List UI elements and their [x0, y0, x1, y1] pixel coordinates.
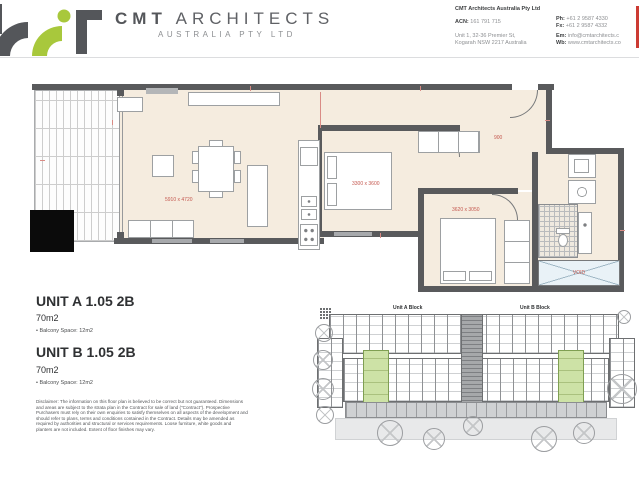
acn-value: 161 791 715 — [470, 19, 501, 25]
window-living-1 — [152, 239, 192, 243]
dim-bed1: 3300 x 3600 — [352, 182, 380, 187]
dim-living: 5910 x 4720 — [165, 198, 193, 203]
disclaimer-text: Disclaimer: The information on this floo… — [36, 399, 248, 433]
brand-subtitle: AUSTRALIA PTY LTD — [158, 30, 296, 39]
bed2-pillow — [443, 271, 466, 281]
tree — [313, 350, 333, 370]
unit-b-title: UNIT B 1.05 2B — [36, 344, 136, 360]
fridge — [300, 147, 318, 166]
tree — [377, 420, 403, 446]
tree — [617, 310, 631, 324]
bed1-pillow — [327, 183, 337, 206]
laundry-tub-basin — [574, 159, 589, 173]
kitchen-island — [247, 165, 268, 227]
balcony-door-line — [119, 92, 120, 240]
wall-cabinet — [188, 92, 280, 106]
brand-name-cmt: CMT — [115, 9, 167, 28]
side-table — [152, 155, 174, 177]
block-a-label: Unit A Block — [393, 305, 422, 311]
dining-table — [198, 146, 234, 192]
header-divider — [0, 57, 639, 58]
void-label: VOID — [573, 271, 585, 276]
bed1-pillow — [327, 156, 337, 179]
kitchen-sink — [301, 196, 317, 207]
wardrobe-bed2 — [504, 220, 530, 284]
dim-entry: 900 — [494, 136, 502, 141]
toilet-bowl — [558, 234, 568, 247]
balcony-door-line2 — [122, 92, 123, 240]
wall-top — [32, 84, 512, 90]
dining-chair — [234, 151, 241, 164]
tree — [312, 378, 334, 400]
unit-a-area: 70m2 — [36, 313, 59, 323]
dim-tick — [250, 86, 251, 91]
dim-tick — [40, 160, 45, 161]
tree — [315, 324, 333, 342]
sofa — [128, 220, 194, 238]
stove — [300, 224, 318, 246]
tree — [531, 426, 557, 452]
unit-a-balcony: • Balcony Space: 12m2 — [36, 328, 93, 334]
planter-box — [30, 210, 74, 252]
address-line-2: Kogarah NSW 2217 Australia — [455, 40, 527, 47]
unit-b-balcony: • Balcony Space: 12m2 — [36, 380, 93, 386]
brand-name-architects: ARCHITECTS — [176, 9, 335, 28]
void-area: VOID — [538, 260, 620, 286]
tv-unit — [146, 88, 178, 94]
dim-tick — [620, 230, 625, 231]
tree — [463, 416, 483, 436]
block-b-label: Unit B Block — [520, 305, 550, 311]
acn-line: ACN: 161 791 715 — [455, 19, 501, 26]
unit-b-area: 70m2 — [36, 365, 59, 375]
dim-tick — [545, 120, 550, 121]
tree — [573, 422, 595, 444]
wall-bottom-right — [418, 286, 624, 292]
address-line-1: Unit 1, 32-36 Premier St, — [455, 33, 516, 40]
site-plan: Unit A Block Unit B Block — [315, 298, 639, 476]
washing-machine — [568, 180, 596, 204]
wall-entry-vertical — [546, 84, 552, 154]
contact-web: Wb: www.cmtarchitects.co — [556, 40, 621, 47]
kitchen-sink-2 — [301, 209, 317, 220]
bed2-pillow — [469, 271, 492, 281]
wall-bed2-top — [418, 188, 518, 194]
dim-tick — [320, 92, 321, 128]
tree — [423, 428, 445, 450]
window-bed1 — [334, 232, 372, 236]
unit-a-title: UNIT A 1.05 2B — [36, 293, 135, 309]
acn-label: ACN: — [455, 19, 469, 25]
dim-tick — [380, 233, 381, 238]
cmt-logo-icon — [0, 2, 104, 56]
vanity — [578, 212, 592, 254]
dim-bed2: 3620 x 3050 — [452, 208, 480, 213]
brand-name: CMT ARCHITECTS — [115, 9, 334, 29]
dim-tick — [420, 86, 421, 91]
dim-tick — [112, 120, 113, 125]
window-living-2 — [210, 239, 244, 243]
dining-chair — [192, 170, 199, 183]
contact-fax: Fx: +61 2 9587 4332 — [556, 23, 607, 30]
wall-bed2-left — [418, 188, 424, 292]
tree — [607, 374, 637, 404]
dining-chair — [234, 170, 241, 183]
dining-chair — [192, 151, 199, 164]
corner-unit — [117, 97, 143, 112]
architect-drawing-sheet: CMT ARCHITECTS AUSTRALIA PTY LTD CMT Arc… — [0, 0, 639, 480]
dining-chair — [209, 140, 223, 147]
contact-phone: Ph: +61 2 9587 4330 — [556, 16, 608, 23]
contact-email: Em: info@cmtarchitects.c — [556, 33, 619, 40]
wardrobe-bed1 — [418, 131, 480, 153]
dining-chair — [209, 191, 223, 198]
tree — [316, 406, 334, 424]
firm-title: CMT Architects Australia Pty Ltd — [455, 6, 540, 13]
